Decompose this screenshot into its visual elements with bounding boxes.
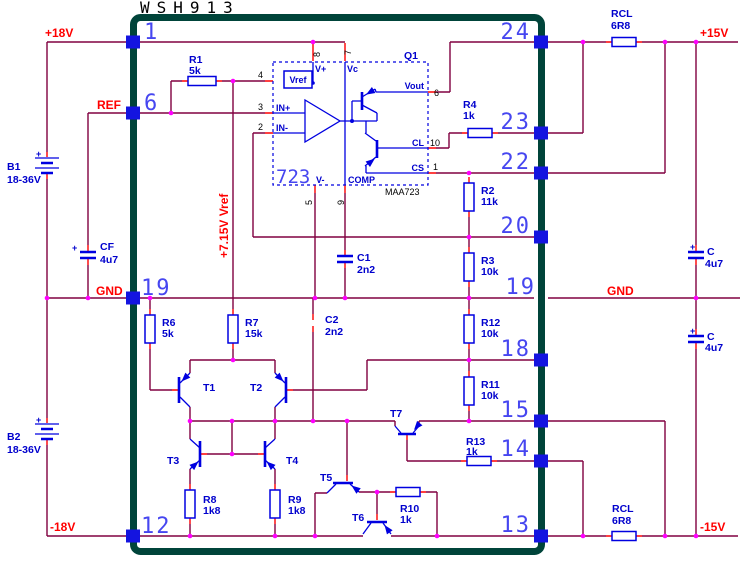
pin-square-6 [126,107,140,120]
b2-value: 18-36V [7,444,41,456]
transistor-t4 [264,439,275,470]
ic-pin-1: 1 [433,162,438,172]
resistor-r4 [468,129,492,138]
ic-pin-2: 2 [258,122,263,132]
net-plus18: +18V [45,26,73,40]
t4-ref: T4 [286,455,298,467]
ic-pin-5: 5 [304,200,314,205]
opamp-triangle [305,100,340,142]
resistor-r1 [188,77,216,86]
ic-pin-3: 3 [258,102,263,112]
pin-square-20 [534,231,548,244]
transistor-t5 [327,483,361,494]
b1-value: 18-36V [7,174,41,186]
c-bottom-value: 4u7 [705,342,723,354]
net-plus15: +15V [700,26,728,40]
t2-ref: T2 [250,382,262,394]
cf-value: 4u7 [100,254,118,266]
resistor-r2 [464,183,474,211]
b1-plus: + [36,149,41,159]
r6-value: 5k [162,328,174,340]
ic-pad-vplus: V+ [315,64,326,74]
pin-square-18 [534,354,548,367]
net-gnd-right: GND [607,284,634,298]
r3-value: 10k [481,266,499,278]
net-ref: REF [97,98,121,112]
resistor-r6 [145,315,155,343]
pin-number-22: 22 [501,150,532,175]
ic-pin-7: 7 [343,50,353,55]
r2-value: 11k [481,196,498,208]
ic-pin-4: 4 [258,70,263,80]
pin-square-19-left [126,292,140,305]
capacitor-cf: + CF 4u7 [72,241,118,266]
c1-label: C1 [357,252,371,264]
ic-pin-6: 6 [434,88,439,98]
schematic-canvas: WSH913 + B1 18-36V + B2 18-36V [0,0,747,567]
pin-square-23 [534,127,548,140]
pin-number-18: 18 [501,337,532,362]
net-minus15: -15V [700,520,725,534]
cf-plus: + [72,243,77,253]
b1-ref: B1 [7,161,21,173]
schematic-page: WSH913 + B1 18-36V + B2 18-36V [0,0,747,567]
c2-value: 2n2 [325,326,343,338]
pin-number-23: 23 [501,110,532,135]
ic-pad-cs: CS [411,163,424,173]
ic-big-label: 723 [276,166,310,188]
pin-square-24 [534,36,548,49]
battery-b1: + B1 18-36V [7,149,59,186]
pin-number-19-right: 19 [506,275,537,300]
pin-number-19-left: 19 [141,276,172,301]
r12-value: 10k [481,328,499,340]
r7-value: 15k [245,328,263,340]
capacitor-c1 [337,256,353,262]
pin-number-6: 6 [144,91,159,116]
resistor-r10 [396,488,420,497]
pin-number-12: 12 [141,514,172,539]
resistor-r11 [464,377,474,405]
cf-ref: CF [100,241,115,253]
c1-value-label: 2n2 [357,264,375,276]
ic-pad-cl: CL [412,138,424,148]
pin-number-13: 13 [501,513,532,538]
resistor-r9 [270,490,280,518]
ic-pad-inp: IN+ [276,103,290,113]
r13-value: 1k [466,446,478,458]
r4-value: 1k [463,110,475,122]
capacitor-c-top: + C 4u7 [688,242,723,270]
rcl-bottom-value: 6R8 [612,515,631,527]
transistor-t3 [189,439,200,470]
pin-square-15 [534,415,548,428]
capacitor-c-bottom: + C 4u7 [688,326,723,354]
module-border [134,18,542,552]
ic-pad-vminus: V- [316,175,325,185]
c-top-ref: C [707,246,715,258]
net-vref-rail: +7.15V Vref [217,193,231,258]
pin-square-1 [126,36,140,49]
t5-ref: T5 [320,472,332,484]
r9-value: 1k8 [288,505,306,517]
transistor-t7 [395,421,422,434]
transistor-t2 [275,373,286,407]
c-top-plus: + [690,242,695,252]
module-title: WSH913 [140,0,240,17]
ic-pad-comp: COMP [348,175,375,185]
resistor-rcl-bottom [612,532,636,541]
ic-pad-vout: Vout [405,81,424,91]
transistor-t1 [179,373,190,407]
b2-plus: + [36,415,41,425]
resistor-r12 [464,315,474,343]
c-top-value: 4u7 [705,258,723,270]
ic-part-number: MAA723 [385,187,420,197]
net-minus18: -18V [50,520,75,534]
pin-number-24: 24 [501,20,532,45]
pin-number-20: 20 [501,214,532,239]
rcl-top-value: 6R8 [611,20,630,32]
t3-ref: T3 [167,455,179,467]
r10-value: 1k [400,514,412,526]
resistor-r7 [228,315,238,343]
c-bottom-plus: + [690,326,695,336]
ic-pin-8: 8 [312,52,322,57]
resistor-r8 [185,490,195,518]
pin-square-14 [534,455,548,468]
resistor-r3 [464,253,474,281]
ic-pad-vc: Vc [347,64,358,74]
pin-square-13 [534,530,548,543]
rcl-top-ref: RCL [611,8,633,20]
pin-number-1: 1 [144,20,159,45]
c2-ref: C2 [325,314,339,326]
pin-square-22 [534,167,548,180]
transistor-t6 [363,522,393,534]
net-gnd-left: GND [96,284,123,298]
pin-square-12 [126,530,140,543]
r8-value: 1k8 [203,505,221,517]
resistor-rcl-top [612,38,636,47]
rcl-bottom-ref: RCL [612,503,634,515]
battery-b2: + B2 18-36V [7,415,59,456]
ic-q1-label: Q1 [404,50,418,62]
r11-value: 10k [481,390,499,402]
ic-pad-vref: Vref [289,75,307,85]
ic-pin-9: 9 [336,200,346,205]
ic-maa723: Vref V+ Vc Vout CL CS COMP V- IN+ IN- 72… [258,50,440,205]
t6-ref: T6 [352,512,364,524]
pin-number-14: 14 [501,437,532,462]
ic-pin-10: 10 [430,138,440,148]
ic-pad-inn: IN- [276,123,288,133]
r1-value: 5k [189,65,201,77]
b2-ref: B2 [7,431,21,443]
t7-ref: T7 [390,408,402,420]
t1-ref: T1 [203,382,215,394]
pin-number-15: 15 [501,398,532,423]
